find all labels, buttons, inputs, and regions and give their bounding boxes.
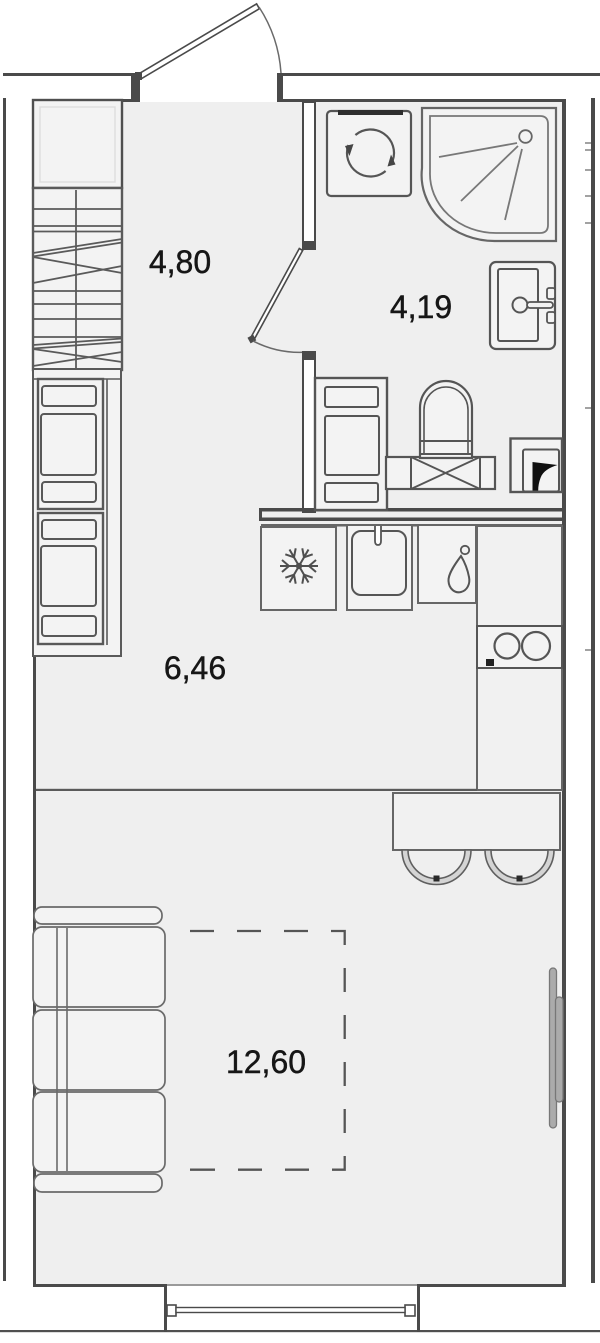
svg-text:4,80: 4,80 [149,244,211,280]
svg-text:6,46: 6,46 [164,650,226,686]
svg-text:4,19: 4,19 [390,289,452,325]
svg-text:12,60: 12,60 [226,1044,306,1080]
